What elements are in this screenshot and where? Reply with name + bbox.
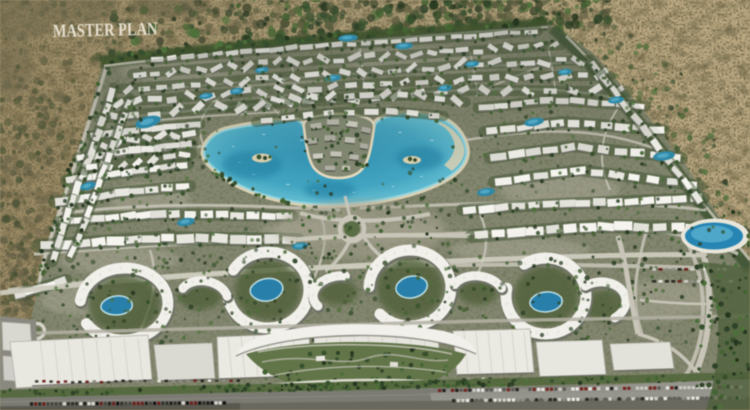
svg-text:MASTER PLAN: MASTER PLAN: [53, 18, 158, 42]
